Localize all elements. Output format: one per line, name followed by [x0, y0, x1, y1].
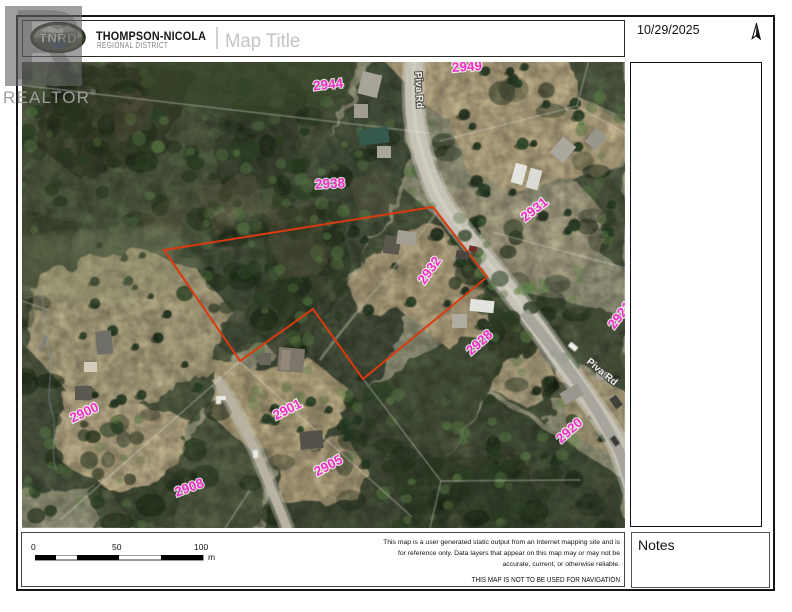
- svg-text:2944: 2944: [312, 75, 344, 93]
- svg-text:2938: 2938: [315, 175, 346, 192]
- svg-text:Piva Rd: Piva Rd: [412, 71, 425, 108]
- svg-text:2949: 2949: [451, 62, 482, 75]
